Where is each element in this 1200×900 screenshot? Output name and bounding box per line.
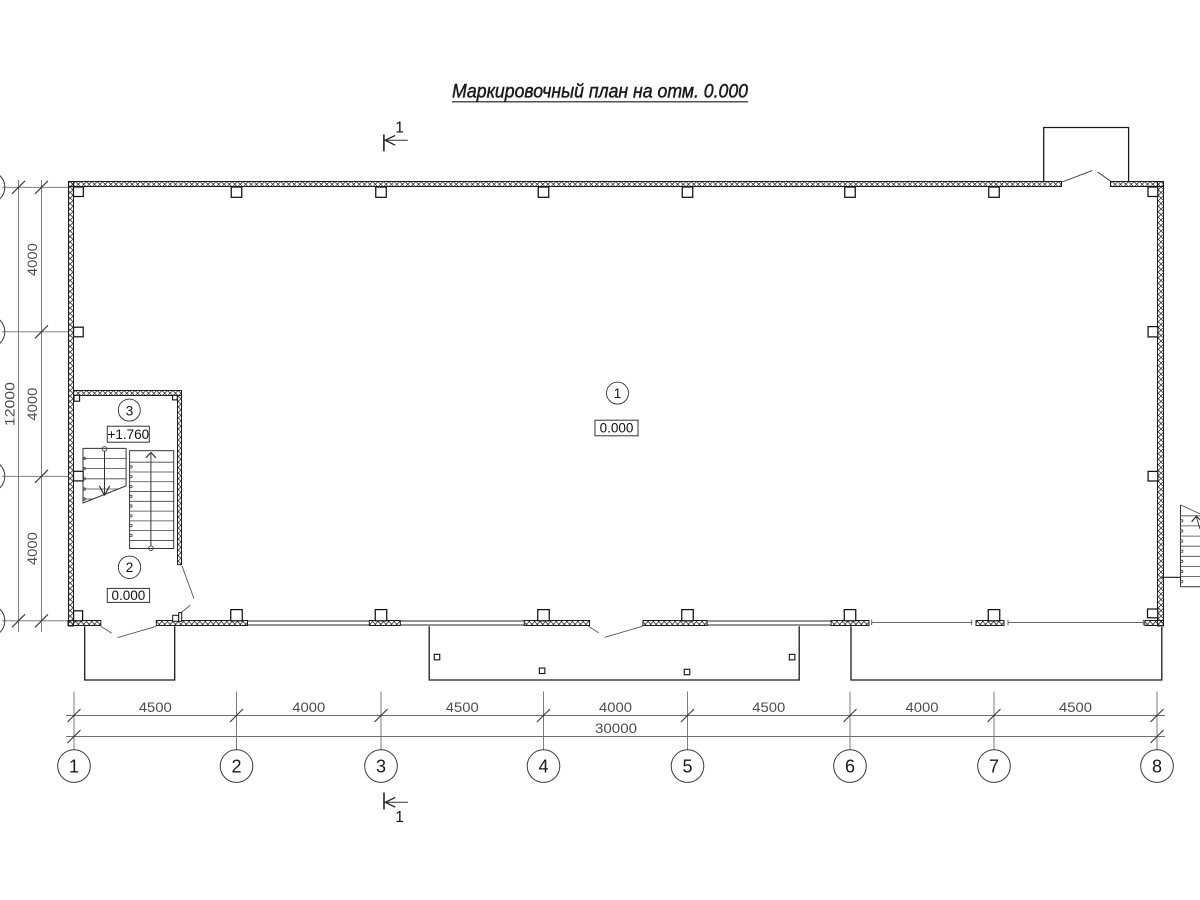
svg-text:12000: 12000 [3, 382, 18, 426]
svg-text:4500: 4500 [1059, 700, 1092, 715]
svg-text:Маркировочный план на отм. 0.0: Маркировочный план на отм. 0.000 [452, 82, 748, 103]
svg-text:4000: 4000 [292, 700, 325, 715]
svg-text:5: 5 [682, 757, 692, 777]
svg-text:1: 1 [69, 757, 79, 777]
svg-text:30000: 30000 [595, 721, 637, 736]
svg-text:3: 3 [376, 757, 386, 777]
svg-text:6: 6 [845, 757, 855, 777]
svg-text:7: 7 [989, 757, 999, 777]
svg-text:4000: 4000 [906, 700, 939, 715]
svg-text:0.000: 0.000 [112, 588, 146, 603]
svg-text:4000: 4000 [25, 243, 40, 276]
svg-text:1: 1 [395, 809, 404, 826]
svg-text:4500: 4500 [752, 700, 785, 715]
svg-text:8: 8 [1152, 757, 1162, 777]
svg-text:1: 1 [395, 120, 404, 137]
svg-text:1: 1 [614, 386, 622, 401]
svg-text:+1.760: +1.760 [107, 427, 149, 442]
svg-text:4500: 4500 [446, 700, 479, 715]
svg-text:4500: 4500 [139, 700, 172, 715]
svg-text:3: 3 [126, 403, 134, 418]
svg-text:0.000: 0.000 [600, 421, 634, 436]
svg-text:4000: 4000 [25, 388, 40, 421]
svg-text:2: 2 [231, 757, 241, 777]
svg-text:2: 2 [126, 560, 134, 575]
svg-text:4000: 4000 [25, 532, 40, 565]
svg-text:4000: 4000 [599, 700, 632, 715]
svg-text:4: 4 [538, 757, 548, 777]
